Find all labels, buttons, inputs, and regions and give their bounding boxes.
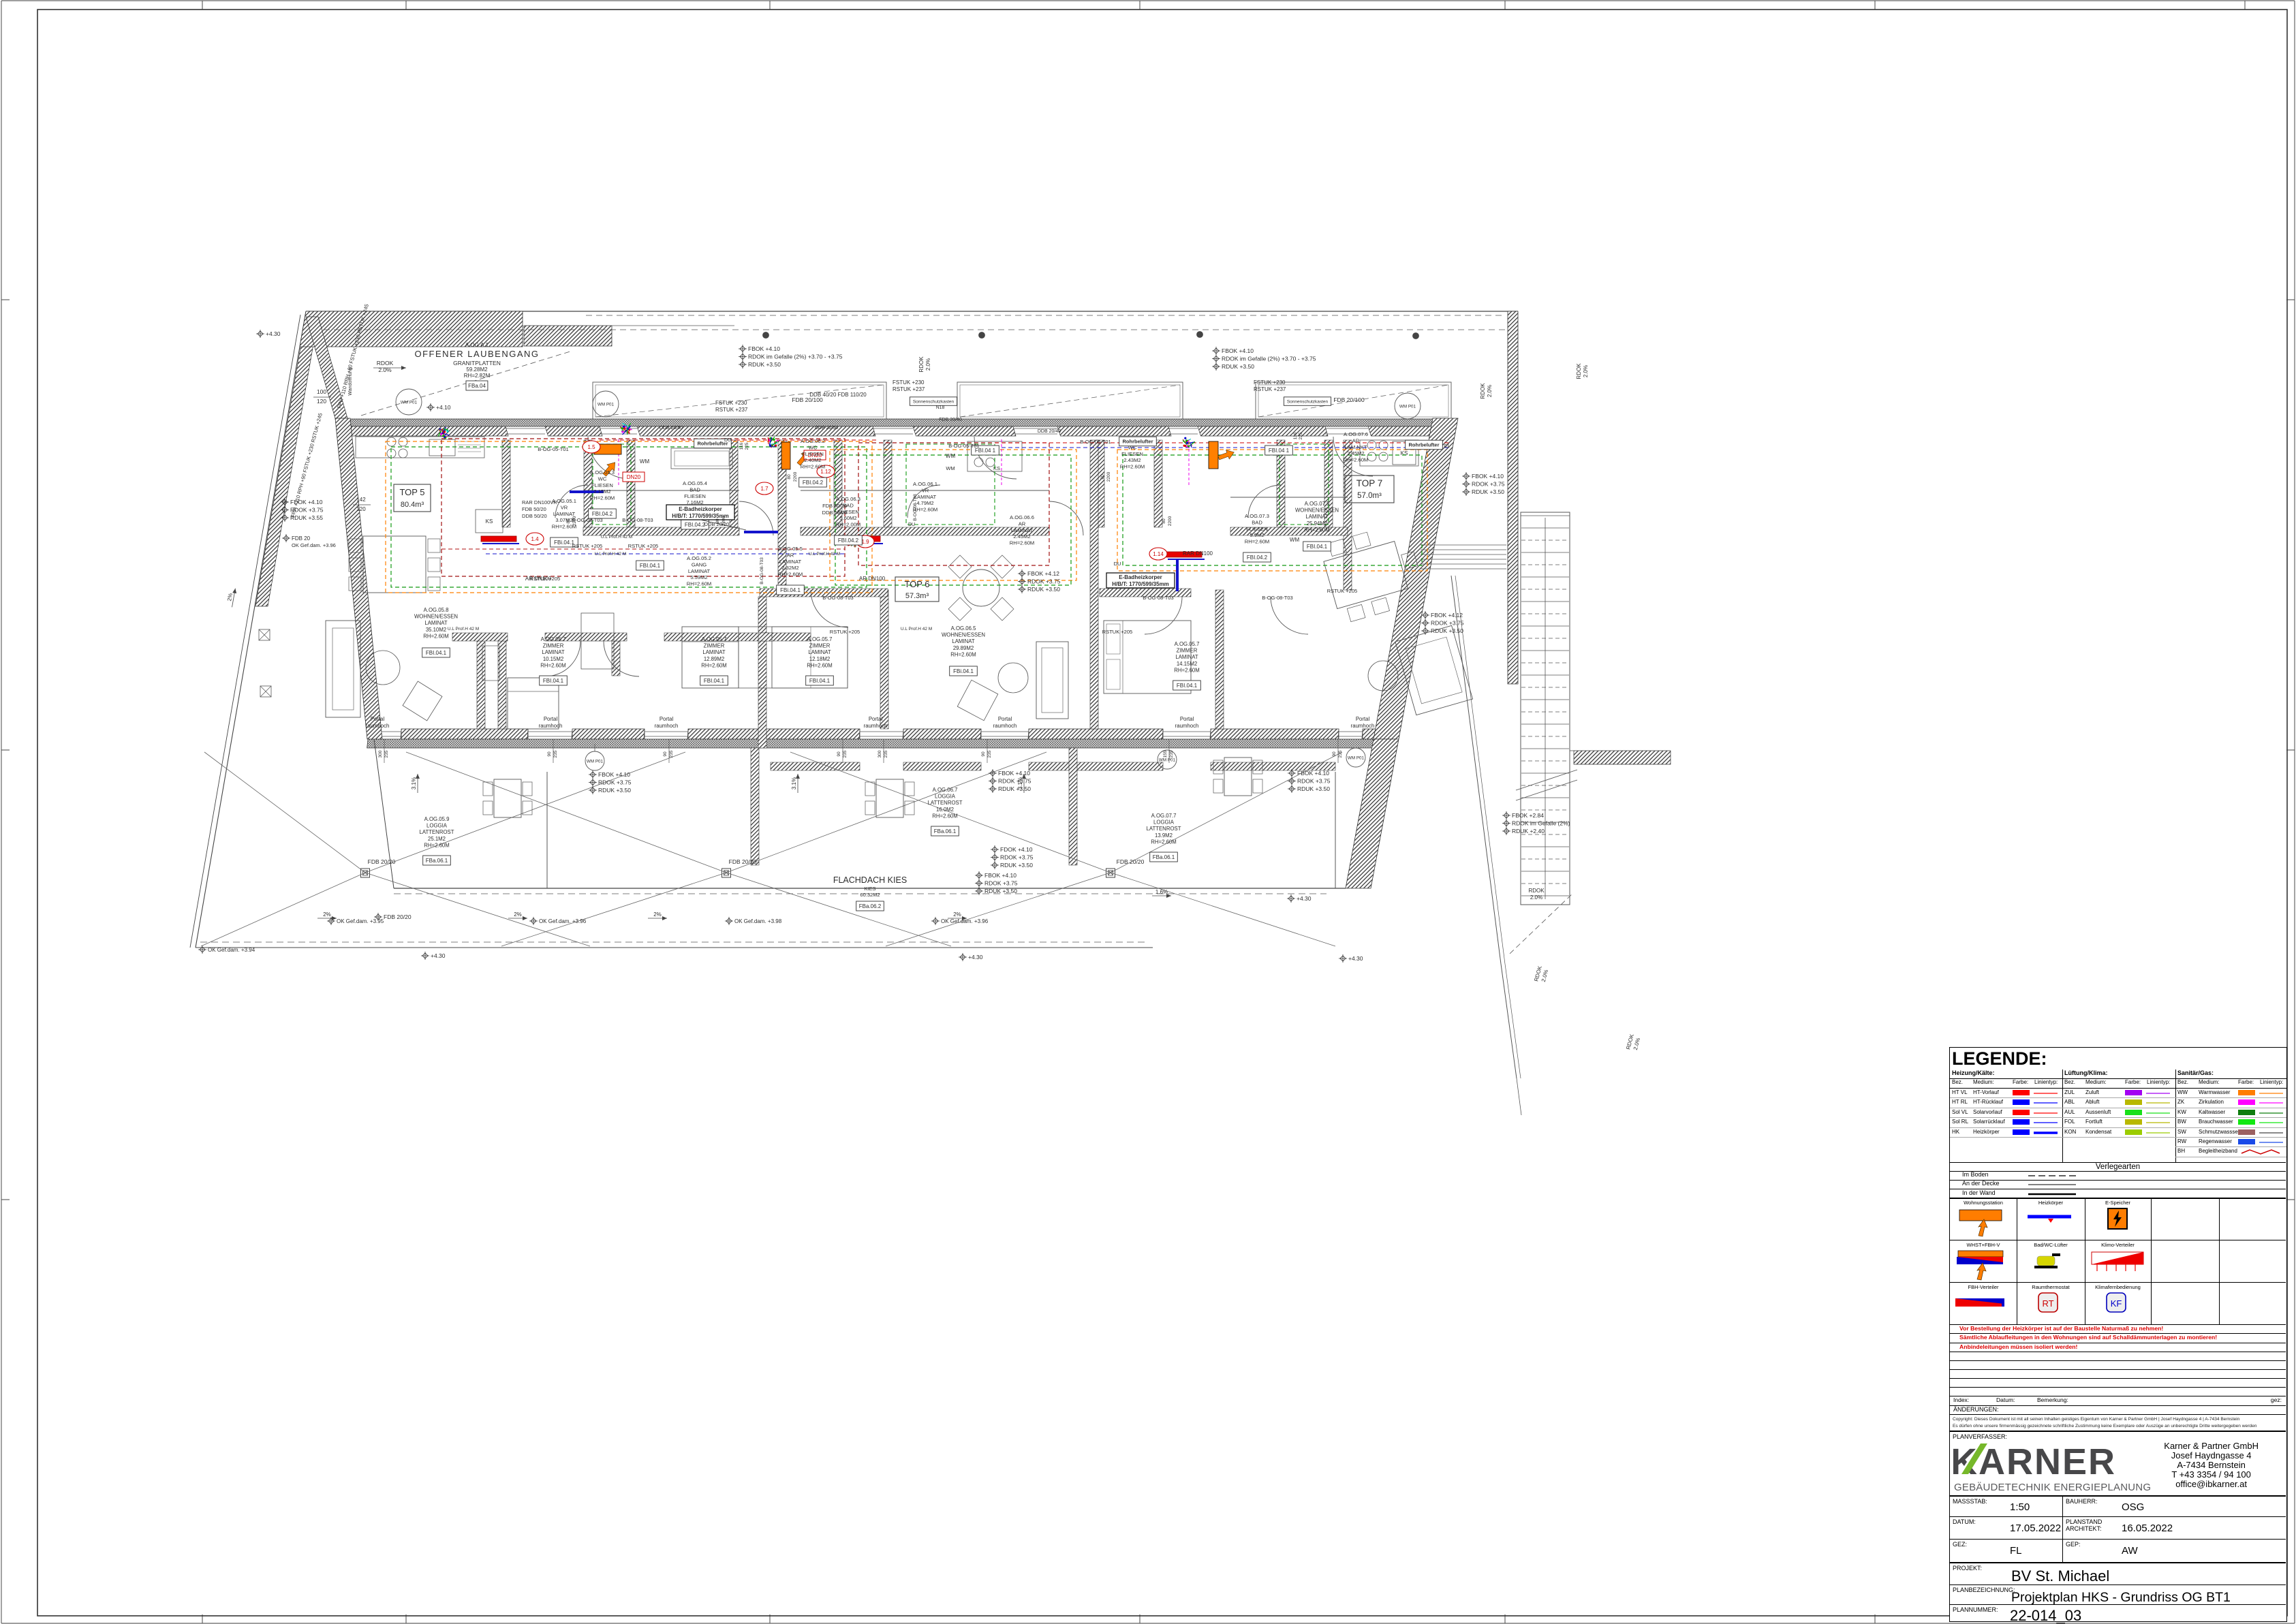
svg-text:H/B/T: 1770/599/35mm: H/B/T: 1770/599/35mm (1112, 581, 1169, 587)
svg-text:225: 225 (745, 442, 749, 450)
svg-text:RDOK +3.75: RDOK +3.75 (984, 880, 1018, 887)
svg-text:RH=2.60M: RH=2.60M (1304, 527, 1330, 533)
svg-text:BAD: BAD (689, 486, 700, 493)
svg-text:RH=2.60M: RH=2.60M (1245, 539, 1270, 545)
svg-text:ZIMMER: ZIMMER (543, 643, 564, 649)
svg-text:1.14: 1.14 (1153, 551, 1164, 557)
svg-text:90: 90 (547, 751, 552, 757)
svg-text:3.1%: 3.1% (1017, 777, 1023, 790)
svg-text:BAD: BAD (1252, 519, 1262, 525)
svg-text:WOHNEN/ESSEN: WOHNEN/ESSEN (1295, 507, 1339, 514)
svg-text:235: 235 (843, 750, 848, 758)
svg-text:LATTENROST: LATTENROST (1147, 826, 1181, 832)
svg-text:RDOK +3.75: RDOK +3.75 (1472, 481, 1505, 488)
svg-text:2200: 2200 (572, 516, 577, 526)
svg-text:LOGGIA: LOGGIA (935, 794, 956, 800)
svg-text:E-Badheizkorper: E-Badheizkorper (679, 506, 722, 512)
svg-text:raumhoch: raumhoch (1175, 723, 1199, 729)
svg-text:FDB 50/20: FDB 50/20 (522, 506, 546, 512)
svg-text:RDUK +3.50: RDUK +3.50 (1297, 785, 1330, 792)
svg-text:FDB 50/20: FDB 50/20 (822, 503, 847, 509)
svg-text:Wandoffnung: Wandoffnung (348, 367, 353, 395)
svg-text:FDB 20/20: FDB 20/20 (729, 858, 757, 865)
svg-text:LATTENROST: LATTENROST (928, 800, 963, 806)
svg-text:FDB 20/100: FDB 20/100 (1333, 396, 1365, 403)
svg-text:Sonnenschutzkasten: Sonnenschutzkasten (1287, 399, 1329, 404)
svg-text:A.OG.06.6: A.OG.06.6 (1010, 514, 1034, 520)
svg-text:LAMINAT: LAMINAT (808, 649, 831, 655)
svg-text:13.9M2: 13.9M2 (1155, 832, 1173, 839)
svg-text:1.9: 1.9 (861, 539, 869, 545)
svg-text:OK Gef.dam. +3.96: OK Gef.dam. +3.96 (539, 918, 587, 924)
svg-text:FSTUK +230: FSTUK +230 (893, 379, 925, 386)
svg-text:+4.10: +4.10 (436, 404, 451, 411)
svg-text:RH=2.60M: RH=2.60M (687, 581, 712, 587)
svg-text:RDUK +3.50: RDUK +3.50 (984, 888, 1017, 894)
svg-text:155: 155 (1163, 750, 1168, 758)
svg-text:FLIESEN: FLIESEN (1246, 526, 1268, 532)
svg-text:FBa.06.1: FBa.06.1 (934, 828, 957, 834)
svg-text:RDUK +3.50: RDUK +3.50 (748, 361, 781, 368)
svg-text:FLIESEN: FLIESEN (591, 482, 613, 488)
svg-text:Portal: Portal (544, 716, 558, 722)
svg-text:FLIESEN: FLIESEN (684, 493, 706, 499)
svg-text:DDB 40/20 FDB 110/20: DDB 40/20 FDB 110/20 (809, 392, 867, 398)
svg-text:WM: WM (1290, 537, 1300, 543)
svg-text:raumhoch: raumhoch (864, 723, 888, 729)
svg-text:FBOK +4.10: FBOK +4.10 (1472, 473, 1504, 480)
svg-text:4.79M2: 4.79M2 (916, 500, 933, 506)
svg-text:OK Gef.dam. +3.98: OK Gef.dam. +3.98 (734, 918, 782, 924)
svg-text:FBi.04.1: FBi.04.1 (953, 668, 974, 674)
svg-text:2.0%: 2.0% (1487, 385, 1493, 397)
svg-text:Rohrbelufter: Rohrbelufter (1123, 439, 1153, 445)
svg-text:DDB 20/50: DDB 20/50 (660, 426, 683, 431)
svg-text:235: 235 (553, 750, 558, 758)
svg-text:RH=2.60M: RH=2.60M (801, 464, 826, 470)
svg-text:DDB 20/50: DDB 20/50 (815, 426, 838, 431)
svg-text:RH=2.60M: RH=2.60M (807, 662, 833, 668)
svg-text:raumhoch: raumhoch (655, 723, 679, 729)
svg-text:DN20: DN20 (627, 474, 641, 480)
svg-text:RDOK: RDOK (1528, 888, 1545, 894)
svg-text:OFFENER LAUBENGANG: OFFENER LAUBENGANG (414, 349, 539, 359)
svg-text:LAMINAT: LAMINAT (542, 649, 564, 655)
svg-text:DU: DU (724, 438, 731, 443)
svg-text:1.7: 1.7 (760, 486, 769, 492)
svg-text:LAMINAT: LAMINAT (779, 559, 802, 565)
svg-text:2.0%: 2.0% (925, 358, 931, 371)
svg-text:12.18M2: 12.18M2 (809, 656, 830, 662)
svg-text:120: 120 (317, 398, 326, 405)
svg-text:LAMINAT: LAMINAT (1011, 527, 1034, 533)
svg-text:DU: DU (1114, 561, 1121, 567)
svg-text:2.32M2: 2.32M2 (781, 565, 798, 571)
svg-text:A.OG.06.1: A.OG.06.1 (913, 481, 937, 487)
svg-text:RH=2.60M: RH=2.60M (424, 842, 450, 848)
svg-text:ZIMMER: ZIMMER (809, 643, 831, 649)
svg-text:FDB 20/20: FDB 20/20 (368, 858, 396, 865)
svg-text:FBI.04 1: FBI.04 1 (1269, 448, 1290, 454)
svg-text:TOP 6: TOP 6 (904, 579, 929, 589)
svg-text:DDB 50/20: DDB 50/20 (822, 510, 848, 516)
svg-text:RH=2.60M: RH=2.60M (1344, 457, 1369, 463)
svg-text:300: 300 (878, 750, 882, 758)
svg-text:U.L Prof.H 42 M: U.L Prof.H 42 M (448, 627, 479, 631)
svg-text:FBI.04.1: FBI.04.1 (426, 650, 447, 656)
svg-text:ZIMMER: ZIMMER (1177, 648, 1198, 654)
svg-text:RDUK +2.40: RDUK +2.40 (1512, 828, 1545, 834)
svg-text:A.OG.06.3: A.OG.06.3 (836, 496, 860, 502)
svg-text:+4.30: +4.30 (968, 954, 983, 961)
svg-text:RH=2.60M: RH=2.60M (778, 572, 803, 578)
svg-text:90: 90 (981, 751, 986, 757)
svg-text:90: 90 (837, 751, 841, 757)
svg-text:B-OG-08-T03: B-OG-08-T03 (913, 494, 918, 521)
svg-text:WM: WM (946, 453, 956, 459)
svg-text:2.0%: 2.0% (1530, 894, 1542, 901)
svg-text:A.OG.05.7: A.OG.05.7 (541, 636, 566, 642)
svg-text:2%: 2% (953, 911, 961, 918)
svg-text:KIES: KIES (864, 886, 875, 892)
svg-text:FBI.04.2: FBI.04.2 (685, 522, 706, 528)
svg-text:5.59M2: 5.59M2 (690, 574, 707, 580)
svg-text:RDUK +3.50: RDUK +3.50 (1472, 488, 1504, 495)
svg-text:LAMINAT: LAMINAT (424, 620, 447, 626)
svg-text:WM: WM (946, 465, 955, 471)
svg-text:RSTUK +205: RSTUK +205 (628, 543, 658, 549)
svg-text:235: 235 (1169, 750, 1174, 758)
svg-text:LOGGIA: LOGGIA (1153, 819, 1175, 826)
svg-text:FBI.04.1: FBI.04.1 (704, 678, 725, 684)
svg-text:A.OG.05.4: A.OG.05.4 (683, 480, 707, 486)
svg-text:14.15M2: 14.15M2 (1177, 661, 1197, 667)
svg-text:RSTUK +237: RSTUK +237 (893, 386, 925, 392)
svg-text:A.OG.05.7: A.OG.05.7 (702, 636, 727, 642)
svg-text:RH=2.82M: RH=2.82M (464, 373, 491, 379)
svg-text:116: 116 (739, 442, 744, 450)
svg-text:100: 100 (317, 388, 326, 395)
svg-text:WM P01: WM P01 (401, 401, 418, 405)
svg-text:TOP 5: TOP 5 (399, 487, 424, 497)
svg-text:80: 80 (1162, 518, 1166, 524)
svg-text:FBI.04.1: FBI.04.1 (1177, 683, 1198, 689)
svg-text:KF: KF (2111, 1298, 2122, 1309)
svg-text:90: 90 (1332, 751, 1337, 757)
svg-text:DDB 20/40: DDB 20/40 (1038, 429, 1061, 434)
svg-text:AR: AR (787, 552, 794, 558)
svg-text:FBOK +4.10: FBOK +4.10 (748, 345, 780, 352)
svg-text:RDOK im Gefalle (2%) +3.70 - +: RDOK im Gefalle (2%) +3.70 - +3.75 (1222, 356, 1316, 362)
svg-text:142: 142 (356, 497, 366, 503)
svg-text:raumhoch: raumhoch (1351, 723, 1375, 729)
svg-text:WM P01: WM P01 (598, 403, 615, 407)
svg-text:raumhoch: raumhoch (366, 723, 390, 729)
svg-text:A.OG.05.5: A.OG.05.5 (778, 546, 803, 552)
svg-text:WM: WM (640, 458, 650, 465)
svg-text:U.L Prof.H 42 M: U.L Prof.H 42 M (901, 627, 932, 631)
svg-text:FBOK +4.12: FBOK +4.12 (1027, 570, 1059, 577)
svg-text:A.OG.07.6: A.OG.07.6 (1344, 431, 1368, 437)
svg-text:Portal: Portal (660, 716, 674, 722)
svg-text:FBOK +4.10: FBOK +4.10 (984, 872, 1017, 879)
svg-text:U.L Prof.H 42 M: U.L Prof.H 42 M (809, 552, 840, 557)
svg-text:Portal: Portal (371, 716, 385, 722)
svg-text:116: 116 (1293, 432, 1298, 439)
svg-text:LAMINAT: LAMINAT (688, 568, 711, 574)
svg-text:10.15M2: 10.15M2 (543, 656, 563, 662)
svg-text:RDOK: RDOK (1576, 363, 1582, 379)
svg-text:2%: 2% (514, 911, 522, 918)
svg-text:LAMINAT: LAMINAT (1175, 654, 1198, 660)
svg-text:FBOK +2.84: FBOK +2.84 (1512, 812, 1544, 819)
svg-text:RDOK +3.75: RDOK +3.75 (998, 778, 1031, 785)
svg-text:RH=2.00M: RH=2.00M (836, 522, 861, 528)
svg-text:LAMINAT: LAMINAT (702, 649, 725, 655)
svg-text:FBI.04.1: FBI.04.1 (640, 563, 661, 569)
svg-text:U.L Prof.H 42 M: U.L Prof.H 42 M (601, 535, 632, 540)
svg-text:235: 235 (384, 750, 389, 758)
svg-text:+4.30: +4.30 (431, 952, 446, 959)
svg-text:FBi.04.1: FBi.04.1 (780, 587, 801, 593)
svg-text:RH=2.60M: RH=2.60M (1174, 667, 1200, 673)
svg-text:A.OG.05.3: A.OG.05.3 (590, 469, 615, 475)
svg-text:Rohrbelufter: Rohrbelufter (698, 441, 728, 447)
svg-text:2.43M2: 2.43M2 (1123, 457, 1141, 463)
svg-text:1.4: 1.4 (531, 536, 539, 542)
svg-text:FBa.04: FBa.04 (468, 383, 486, 389)
svg-text:FBI.04.1: FBI.04.1 (809, 678, 831, 684)
svg-text:LAMINAT: LAMINAT (1305, 514, 1328, 520)
svg-text:FLIESEN: FLIESEN (1121, 451, 1143, 457)
svg-text:FDB 20/20: FDB 20/20 (1117, 858, 1145, 865)
svg-text:2.0%: 2.0% (378, 366, 392, 373)
svg-text:57.0m³: 57.0m³ (1357, 492, 1382, 500)
svg-text:OK Gef.dam. +3.96: OK Gef.dam. +3.96 (292, 542, 336, 548)
svg-text:235: 235 (1338, 750, 1343, 758)
svg-text:1.5: 1.5 (587, 444, 595, 450)
svg-text:RH=2.60M: RH=2.60M (950, 651, 976, 657)
svg-text:+4.30: +4.30 (1297, 895, 1312, 902)
svg-text:2200: 2200 (1168, 516, 1173, 526)
svg-text:FBI.04.2: FBI.04.2 (1247, 555, 1268, 561)
svg-text:300: 300 (378, 750, 383, 758)
svg-text:25.94M2: 25.94M2 (1307, 520, 1327, 527)
svg-text:WC: WC (809, 444, 818, 450)
svg-text:VR: VR (561, 504, 568, 510)
svg-text:RDUK +3.50: RDUK +3.50 (1431, 627, 1463, 634)
svg-text:1.6%: 1.6% (1155, 889, 1168, 895)
svg-text:59.28M2: 59.28M2 (466, 366, 488, 373)
svg-text:Portal: Portal (1180, 716, 1194, 722)
svg-text:FBI.04.1: FBI.04.1 (543, 678, 564, 684)
svg-text:FBI.04.1: FBI.04.1 (1307, 544, 1328, 550)
svg-text:80.4m³: 80.4m³ (401, 501, 424, 509)
svg-text:A.OG.05.2: A.OG.05.2 (687, 555, 711, 561)
svg-text:60.32M2: 60.32M2 (860, 892, 880, 898)
svg-text:E-Badheizkorper: E-Badheizkorper (1119, 574, 1162, 580)
svg-text:A.OG.07.3: A.OG.07.3 (1245, 513, 1269, 519)
svg-text:WM P01: WM P01 (587, 760, 604, 764)
svg-text:5.9M2: 5.9M2 (1250, 532, 1264, 538)
svg-text:AR DN100: AR DN100 (859, 576, 886, 582)
svg-text:25.1M2: 25.1M2 (428, 836, 446, 842)
svg-text:FDB 20/40: FDB 20/40 (939, 418, 962, 422)
svg-text:A.OG.07.7: A.OG.07.7 (1151, 813, 1177, 819)
svg-text:LAMINAT: LAMINAT (553, 511, 576, 517)
svg-text:80: 80 (787, 474, 792, 480)
svg-text:A.OG.05.7: A.OG.05.7 (1175, 641, 1200, 647)
svg-text:FDB 20: FDB 20 (292, 535, 311, 542)
svg-text:2.15M2: 2.15M2 (593, 488, 610, 495)
svg-text:B-OG-08-T03: B-OG-08-T03 (822, 595, 853, 601)
svg-text:FLIESEN: FLIESEN (802, 451, 824, 457)
svg-text:RSTUK +205: RSTUK +205 (1102, 629, 1132, 635)
svg-text:FBOK +4.10: FBOK +4.10 (998, 770, 1030, 777)
svg-text:3.1%: 3.1% (411, 777, 417, 790)
svg-text:RDOK +3.75: RDOK +3.75 (1431, 620, 1464, 627)
svg-text:80: 80 (1100, 474, 1105, 480)
svg-text:RDOK +3.75: RDOK +3.75 (1297, 778, 1331, 785)
svg-text:GANG: GANG (692, 561, 707, 567)
svg-text:DDB 50/20: DDB 50/20 (522, 513, 547, 519)
svg-text:2%: 2% (323, 911, 331, 918)
svg-text:A.OG.05.8: A.OG.05.8 (424, 607, 449, 613)
svg-text:RDUK +3.50: RDUK +3.50 (1222, 363, 1254, 370)
svg-text:235: 235 (987, 750, 992, 758)
svg-text:WC: WC (598, 475, 607, 482)
svg-text:A.OG.05.7: A.OG.05.7 (807, 636, 833, 642)
svg-text:WM P01: WM P01 (1399, 405, 1416, 409)
svg-text:RH=2.60M: RH=2.60M (701, 662, 727, 668)
svg-text:KS: KS (486, 518, 493, 525)
svg-text:FBI.04.2: FBI.04.2 (592, 511, 613, 517)
svg-text:FSTUK +230: FSTUK +230 (1254, 379, 1286, 386)
svg-text:B-OG-08-T03: B-OG-08-T03 (622, 517, 653, 523)
svg-text:RH=2.60M: RH=2.60M (1120, 464, 1145, 470)
svg-text:RT: RT (2042, 1298, 2053, 1309)
svg-text:WM P01: WM P01 (1159, 758, 1176, 763)
svg-text:FSTUK +230: FSTUK +230 (715, 400, 747, 406)
svg-text:Portal: Portal (869, 716, 883, 722)
svg-text:235: 235 (669, 750, 674, 758)
svg-text:80: 80 (715, 518, 720, 524)
svg-text:3.1%: 3.1% (791, 777, 797, 790)
svg-text:RH=2.60M: RH=2.60M (423, 633, 449, 639)
svg-text:RDOK +3.75: RDOK +3.75 (598, 779, 632, 786)
svg-text:FBOK +4.12: FBOK +4.12 (1431, 612, 1463, 619)
svg-text:N18: N18 (936, 405, 945, 410)
svg-text:RDUK +3.50: RDUK +3.50 (998, 785, 1031, 792)
svg-text:A.OG.A.1: A.OG.A.1 (465, 342, 489, 348)
svg-text:RH=2.60M: RH=2.60M (540, 662, 566, 668)
svg-text:AR: AR (1019, 520, 1026, 527)
svg-text:FDB 20/20: FDB 20/20 (384, 913, 412, 920)
svg-text:RDOK: RDOK (377, 360, 394, 366)
svg-text:FBOK +4.10: FBOK +4.10 (598, 771, 630, 778)
svg-text:235: 235 (884, 750, 888, 758)
svg-text:RDOK +3.75: RDOK +3.75 (1027, 578, 1061, 585)
svg-text:90: 90 (663, 751, 668, 757)
svg-text:RH=2.60M: RH=2.60M (932, 813, 958, 819)
svg-text:RSTUK +205: RSTUK +205 (830, 629, 860, 635)
svg-text:35.10M2: 35.10M2 (426, 627, 446, 633)
svg-text:FLACHDACH KIES: FLACHDACH KIES (833, 875, 907, 885)
svg-text:LAMINAT: LAMINAT (952, 638, 974, 644)
svg-text:LAM.NKT: LAM.NKT (1345, 444, 1367, 450)
svg-text:B-OG-05-T01: B-OG-05-T01 (948, 443, 979, 449)
svg-text:FDOK +4.10: FDOK +4.10 (1000, 846, 1033, 853)
svg-text:OK Gef.dam. +3.94: OK Gef.dam. +3.94 (208, 947, 255, 953)
svg-text:WM P01: WM P01 (1348, 756, 1365, 761)
svg-text:RDUK +3.50: RDUK +3.50 (1027, 586, 1060, 593)
svg-text:U.L Prof.H 42 M: U.L Prof.H 42 M (595, 552, 626, 557)
svg-text:Portal: Portal (998, 716, 1012, 722)
svg-text:DU: DU (908, 522, 915, 527)
svg-text:225: 225 (1299, 432, 1303, 439)
svg-text:H/B/T: 1770/599/35mm: H/B/T: 1770/599/35mm (672, 513, 729, 519)
svg-text:B-OG-08-T03: B-OG-08-T03 (1262, 595, 1292, 601)
svg-text:RSTUK +205: RSTUK +205 (1327, 588, 1357, 594)
svg-text:16.0M2: 16.0M2 (936, 807, 954, 813)
svg-text:KS: KS (1401, 450, 1408, 456)
svg-text:RDOK: RDOK (1480, 383, 1486, 399)
svg-text:B-OG-08-T03: B-OG-08-T03 (1143, 595, 1173, 601)
svg-text:FBI.04.2: FBI.04.2 (803, 480, 824, 486)
svg-text:+4.30: +4.30 (266, 330, 281, 337)
svg-text:raumhoch: raumhoch (539, 723, 563, 729)
svg-text:AR: AR (1352, 437, 1360, 443)
svg-text:Portal: Portal (1356, 716, 1370, 722)
svg-text:AR DN100: AR DN100 (525, 576, 552, 582)
svg-text:RSTUK +205: RSTUK +205 (572, 543, 602, 549)
svg-text:Sonnenschutzkasten: Sonnenschutzkasten (913, 399, 955, 404)
svg-text:RH=2.60M: RH=2.60M (1010, 540, 1035, 546)
svg-text:FBa.06.1: FBa.06.1 (1153, 854, 1175, 860)
svg-text:GRANITPLATTEN: GRANITPLATTEN (453, 360, 501, 366)
svg-text:GEBÄUDETECHNIK ENERGIEPLANUNG: GEBÄUDETECHNIK ENERGIEPLANUNG (1954, 1482, 2151, 1493)
svg-text:LOGGIA: LOGGIA (426, 823, 448, 829)
svg-text:29.89M2: 29.89M2 (953, 645, 974, 651)
svg-text:FBI.04.2: FBI.04.2 (838, 537, 859, 544)
svg-text:2.40M2: 2.40M2 (804, 457, 821, 463)
svg-text:2.45M2: 2.45M2 (1013, 533, 1030, 540)
svg-text:2%: 2% (653, 911, 662, 918)
svg-text:B-OG-08-T03: B-OG-08-T03 (760, 557, 764, 584)
svg-text:RH=2.60M: RH=2.60M (590, 495, 615, 501)
svg-text:raumhoch: raumhoch (993, 723, 1017, 729)
svg-text:RSTUK +237: RSTUK +237 (1254, 386, 1286, 392)
svg-text:LATTENROST: LATTENROST (420, 829, 454, 835)
svg-text:A.OG.06.7: A.OG.06.7 (933, 787, 958, 793)
svg-text:TOP 7: TOP 7 (1356, 478, 1383, 488)
svg-text:RAR DN100: RAR DN100 (1183, 550, 1213, 557)
svg-text:57.3m³: 57.3m³ (905, 592, 929, 600)
svg-text:5.60M2: 5.60M2 (839, 515, 856, 521)
svg-text:RDOK im Gefalle (2%) +3.70 - +: RDOK im Gefalle (2%) +3.70 - +3.75 (748, 354, 843, 360)
svg-text:FBa.06.1: FBa.06.1 (426, 858, 448, 864)
svg-text:WOHNEN/ESSEN: WOHNEN/ESSEN (942, 632, 985, 638)
svg-text:RDUK +3.50: RDUK +3.50 (598, 787, 631, 794)
svg-text:FBa.06.2: FBa.06.2 (859, 903, 882, 909)
svg-text:A.OG.05.9: A.OG.05.9 (424, 816, 450, 822)
svg-text:B-OG-05-T01: B-OG-05-T01 (538, 446, 568, 452)
svg-text:VR: VR (922, 487, 929, 493)
svg-text:RDOK: RDOK (918, 356, 925, 373)
svg-text:WOHNEN/ESSEN: WOHNEN/ESSEN (414, 614, 458, 620)
svg-text:+4.30: +4.30 (1348, 955, 1363, 962)
svg-text:Rohrbelufter: Rohrbelufter (1409, 442, 1440, 448)
